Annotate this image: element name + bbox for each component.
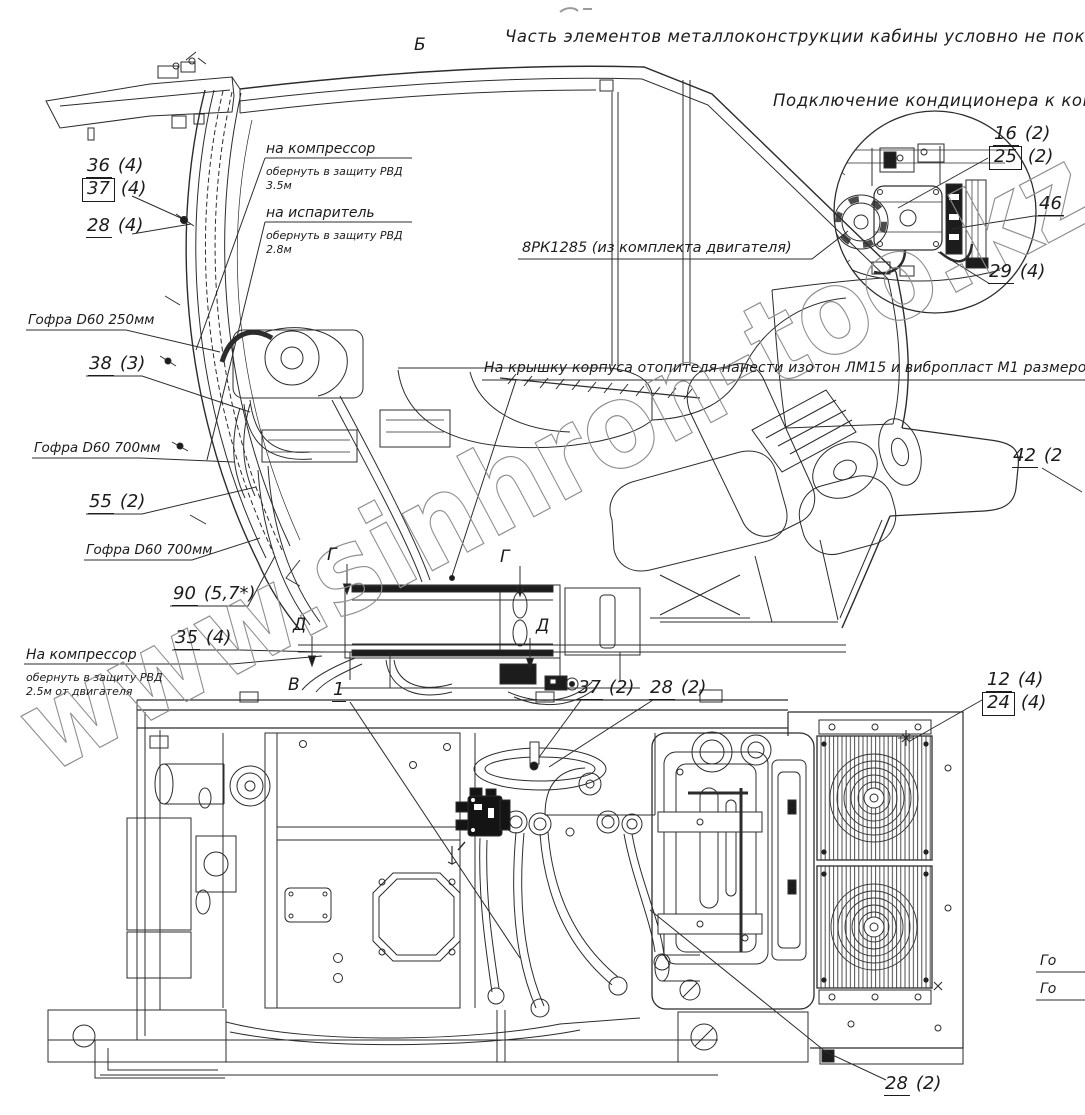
- callout-28c-qty: (2): [916, 1073, 942, 1094]
- section-mark-d2: Д: [536, 617, 549, 637]
- callout-36-number: 36: [86, 155, 112, 178]
- callout-28a: 28(4): [86, 216, 143, 237]
- callout-90-number: 90: [172, 583, 198, 606]
- callout-37b: 37(2): [577, 678, 634, 699]
- label-gofra-700a: Гофра D60 700мм: [34, 441, 160, 457]
- callout-24-qty: (4): [1021, 692, 1047, 713]
- callout-28a-number: 28: [86, 215, 112, 238]
- callout-12-number: 12: [986, 669, 1012, 692]
- callout-46: 46: [1038, 194, 1064, 215]
- callout-1-number: 1: [332, 679, 346, 702]
- deck-main-panel: [265, 733, 460, 1008]
- callout-37b-qty: (2): [609, 677, 635, 698]
- note-line2: 2.5м от двигателя: [26, 685, 163, 699]
- callout-36: 36(4): [86, 156, 143, 177]
- callout-28a-qty: (4): [118, 215, 144, 236]
- section-mark-b: Б: [414, 36, 426, 56]
- section-mark-d1: Д: [293, 616, 306, 636]
- callout-16-qty: (2): [1025, 123, 1051, 144]
- callout-24: 24(4): [982, 692, 1046, 716]
- callout-38-qty: (3): [120, 353, 146, 374]
- label-cut-right-1: Го: [1040, 953, 1056, 969]
- note-title: На компрессор: [26, 647, 163, 663]
- note-belt: 8РК1285 (из комплекта двигателя): [522, 240, 792, 257]
- note-to-evaporator: на испаритель обернуть в защиту РВД 2.8м: [266, 205, 403, 257]
- callout-37a-qty: (4): [121, 178, 147, 199]
- deck-compressor: [448, 788, 510, 864]
- section-mark-g1: Г: [327, 546, 336, 566]
- callout-38-number: 38: [88, 353, 114, 376]
- deck-plan-view: [48, 690, 963, 1078]
- callout-25: 25(2): [989, 146, 1053, 170]
- label-gofra-250: Гофра D60 250мм: [28, 313, 154, 329]
- callout-25-qty: (2): [1028, 146, 1054, 167]
- callout-42-number: 42: [1012, 445, 1038, 468]
- note-line2: 2.8м: [266, 243, 403, 257]
- note-line2: 3.5м: [266, 179, 403, 193]
- note-line1: обернуть в защиту РВД: [266, 165, 403, 179]
- note-line1: обернуть в защиту РВД: [266, 229, 403, 243]
- note-detail-title: Подключение кондиционера к компрессору: [773, 88, 1018, 114]
- section-mark-g2: Г: [500, 548, 509, 568]
- callout-36-qty: (4): [118, 155, 144, 176]
- callout-12: 12(4): [986, 670, 1043, 691]
- callout-16-number: 16: [993, 123, 1019, 146]
- callout-28b-qty: (2): [681, 677, 707, 698]
- condenser-fan-grilles: [817, 736, 932, 988]
- label-cut-right-2: Го: [1040, 981, 1056, 997]
- callout-55-number: 55: [88, 491, 114, 514]
- callout-29-qty: (4): [1020, 261, 1046, 282]
- label-gofra-700b: Гофра D60 700мм: [86, 543, 212, 559]
- callout-37b-number: 37: [577, 677, 603, 700]
- callout-25-number: 25: [989, 146, 1022, 170]
- callout-90-qty: (5,7*): [204, 583, 256, 604]
- callout-28b: 28(2): [649, 678, 706, 699]
- callout-28c-number: 28: [884, 1073, 910, 1096]
- callout-16: 16(2): [993, 124, 1050, 145]
- note-to-compressor-top: на компрессор обернуть в защиту РВД 3.5м: [266, 141, 403, 193]
- callout-55-qty: (2): [120, 491, 146, 512]
- callout-35-number: 35: [174, 627, 200, 650]
- note-to-compressor-engine: На компрессор обернуть в защиту РВД 2.5м…: [26, 647, 163, 699]
- note-line1: обернуть в защиту РВД: [26, 671, 163, 685]
- callout-35-qty: (4): [206, 627, 232, 648]
- technical-drawing-sheet: www.sinhron-too.kz Часть элементов метал…: [0, 0, 1085, 1115]
- section-mark-v: В: [288, 676, 300, 696]
- deck-left-blocks: [127, 736, 236, 978]
- callout-90: 90(5,7*): [172, 584, 256, 605]
- callout-37a-number: 37: [82, 178, 115, 202]
- base-frame: [48, 1010, 963, 1078]
- hose-bay: [474, 733, 670, 1017]
- radiator-assembly: [652, 732, 814, 1009]
- callout-29-number: 29: [988, 261, 1014, 284]
- callout-28b-number: 28: [649, 677, 675, 700]
- callout-37a: 37(4): [82, 178, 146, 202]
- callout-1: 1: [332, 680, 346, 701]
- callout-24-number: 24: [982, 692, 1015, 716]
- callout-29: 29(4): [988, 262, 1045, 283]
- callout-42: 42(2: [1012, 446, 1062, 467]
- callout-28c: 28(2): [884, 1074, 941, 1095]
- callout-12-qty: (4): [1018, 669, 1044, 690]
- callout-42-qty: (2: [1044, 445, 1062, 466]
- note-title: на испаритель: [266, 205, 403, 221]
- note-hidden-elements: Часть элементов металлоконструкции кабин…: [505, 24, 1080, 50]
- note-title: на компрессор: [266, 141, 403, 157]
- callout-38: 38(3): [88, 354, 145, 375]
- callout-35: 35(4): [174, 628, 231, 649]
- callout-55: 55(2): [88, 492, 145, 513]
- callout-46-number: 46: [1038, 193, 1064, 216]
- note-heater-cover: На крышку корпуса отопителя нанести изот…: [484, 360, 1085, 376]
